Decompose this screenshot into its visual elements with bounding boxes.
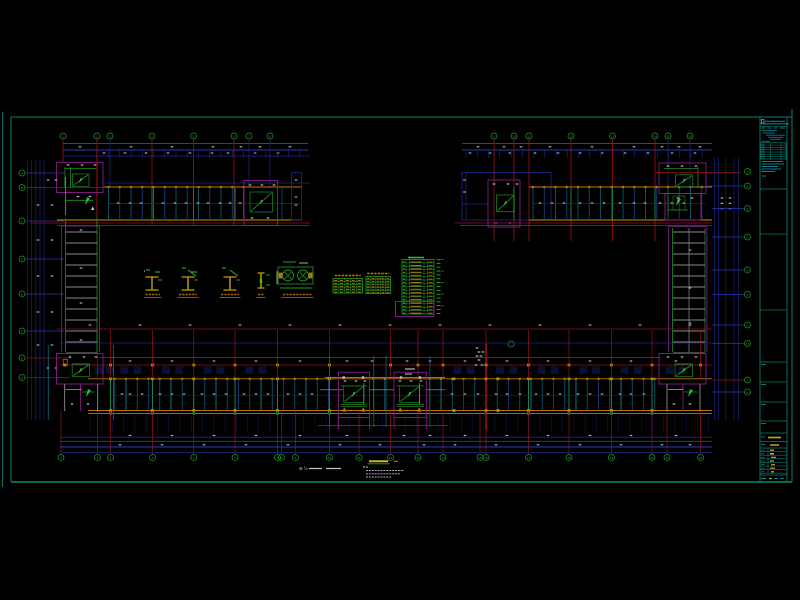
svg-text:H: H bbox=[746, 342, 748, 346]
svg-text:21: 21 bbox=[665, 456, 669, 460]
svg-text:15: 15 bbox=[478, 456, 482, 460]
svg-text:20: 20 bbox=[650, 456, 654, 460]
svg-text:10: 10 bbox=[512, 134, 516, 138]
svg-text:A: A bbox=[746, 170, 748, 174]
svg-text:13: 13 bbox=[416, 456, 420, 460]
svg-text:13: 13 bbox=[611, 134, 615, 138]
svg-text:16: 16 bbox=[688, 134, 692, 138]
svg-text:B: B bbox=[746, 184, 748, 188]
svg-text:15: 15 bbox=[666, 134, 670, 138]
svg-text:⊕ ½: ⊕ ½ bbox=[299, 465, 308, 471]
svg-text:12: 12 bbox=[569, 134, 573, 138]
svg-text:F: F bbox=[747, 293, 749, 297]
svg-text:A: A bbox=[21, 171, 23, 175]
svg-text:H: H bbox=[21, 376, 23, 380]
svg-text:10: 10 bbox=[328, 456, 332, 460]
svg-text:12: 12 bbox=[389, 456, 393, 460]
svg-text:K: K bbox=[746, 390, 748, 394]
svg-text:16: 16 bbox=[484, 456, 488, 460]
svg-text:B: B bbox=[21, 186, 23, 190]
svg-text:11: 11 bbox=[527, 134, 530, 138]
svg-text:17: 17 bbox=[527, 456, 531, 460]
svg-text:F: F bbox=[21, 329, 23, 333]
svg-text:22: 22 bbox=[699, 456, 703, 460]
svg-text:18: 18 bbox=[567, 456, 571, 460]
svg-text:19: 19 bbox=[610, 456, 614, 460]
svg-text:E: E bbox=[21, 292, 23, 296]
svg-text:14: 14 bbox=[653, 134, 657, 138]
svg-text:11: 11 bbox=[357, 456, 360, 460]
svg-text:14: 14 bbox=[441, 456, 445, 460]
svg-text:E: E bbox=[746, 268, 748, 272]
